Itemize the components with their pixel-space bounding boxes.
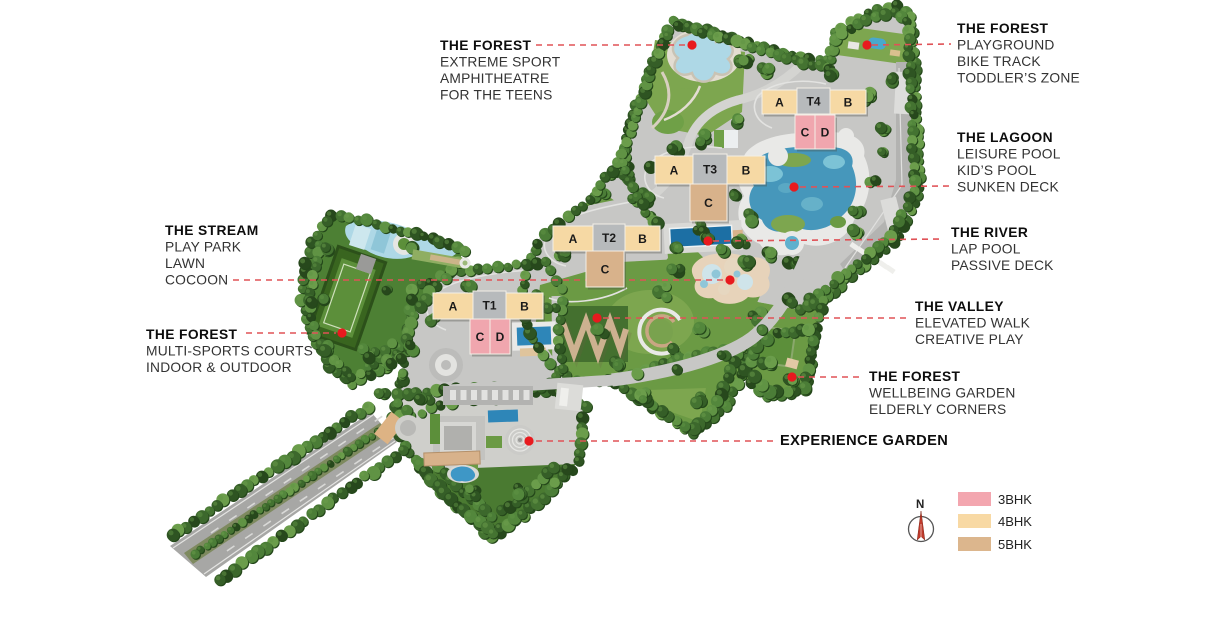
svg-text:THE FOREST: THE FOREST xyxy=(957,21,1049,36)
svg-text:3BHK: 3BHK xyxy=(998,492,1032,507)
svg-text:MULTI-SPORTS COURTS: MULTI-SPORTS COURTS xyxy=(146,344,313,359)
svg-text:LAP POOL: LAP POOL xyxy=(951,242,1021,257)
svg-text:PLAY PARK: PLAY PARK xyxy=(165,240,242,255)
svg-text:C: C xyxy=(476,330,485,344)
svg-text:D: D xyxy=(821,125,830,139)
svg-text:4BHK: 4BHK xyxy=(998,514,1032,529)
svg-text:THE VALLEY: THE VALLEY xyxy=(915,299,1004,314)
svg-text:C: C xyxy=(601,262,610,276)
svg-text:T2: T2 xyxy=(602,231,616,245)
svg-text:THE FOREST: THE FOREST xyxy=(440,38,532,53)
svg-text:THE FOREST: THE FOREST xyxy=(146,327,238,342)
svg-text:BIKE TRACK: BIKE TRACK xyxy=(957,54,1041,69)
svg-text:LEISURE POOL: LEISURE POOL xyxy=(957,147,1061,162)
svg-text:EXTREME SPORT: EXTREME SPORT xyxy=(440,55,561,70)
svg-text:THE LAGOON: THE LAGOON xyxy=(957,130,1053,145)
svg-text:ELDERLY CORNERS: ELDERLY CORNERS xyxy=(869,402,1006,417)
svg-text:A: A xyxy=(775,95,784,109)
svg-text:D: D xyxy=(496,330,505,344)
svg-text:B: B xyxy=(844,95,853,109)
svg-text:5BHK: 5BHK xyxy=(998,537,1032,552)
svg-text:EXPERIENCE GARDEN: EXPERIENCE GARDEN xyxy=(780,433,948,449)
svg-text:B: B xyxy=(742,163,751,177)
svg-text:T3: T3 xyxy=(703,162,717,176)
svg-text:A: A xyxy=(449,299,458,313)
svg-text:WELLBEING GARDEN: WELLBEING GARDEN xyxy=(869,386,1016,401)
svg-text:KID’S POOL: KID’S POOL xyxy=(957,163,1037,178)
svg-text:B: B xyxy=(638,232,647,246)
svg-text:T1: T1 xyxy=(482,298,496,312)
svg-text:FOR THE TEENS: FOR THE TEENS xyxy=(440,88,552,103)
svg-text:LAWN: LAWN xyxy=(165,256,205,271)
svg-text:THE STREAM: THE STREAM xyxy=(165,223,259,238)
svg-text:COCOON: COCOON xyxy=(165,273,228,288)
svg-text:C: C xyxy=(801,125,810,139)
svg-text:THE FOREST: THE FOREST xyxy=(869,369,961,384)
svg-text:CREATIVE PLAY: CREATIVE PLAY xyxy=(915,332,1024,347)
svg-text:THE RIVER: THE RIVER xyxy=(951,225,1028,240)
svg-text:AMPHITHEATRE: AMPHITHEATRE xyxy=(440,71,549,86)
svg-text:SUNKEN DECK: SUNKEN DECK xyxy=(957,180,1059,195)
svg-text:ELEVATED WALK: ELEVATED WALK xyxy=(915,316,1031,331)
svg-text:N: N xyxy=(916,499,924,511)
svg-text:PASSIVE DECK: PASSIVE DECK xyxy=(951,258,1054,273)
svg-text:TODDLER’S ZONE: TODDLER’S ZONE xyxy=(957,71,1080,86)
svg-text:T4: T4 xyxy=(806,94,820,108)
svg-text:C: C xyxy=(704,196,713,210)
svg-text:A: A xyxy=(670,163,679,177)
svg-text:A: A xyxy=(569,232,578,246)
svg-text:B: B xyxy=(520,299,529,313)
svg-text:PLAYGROUND: PLAYGROUND xyxy=(957,38,1055,53)
svg-text:INDOOR & OUTDOOR: INDOOR & OUTDOOR xyxy=(146,360,292,375)
